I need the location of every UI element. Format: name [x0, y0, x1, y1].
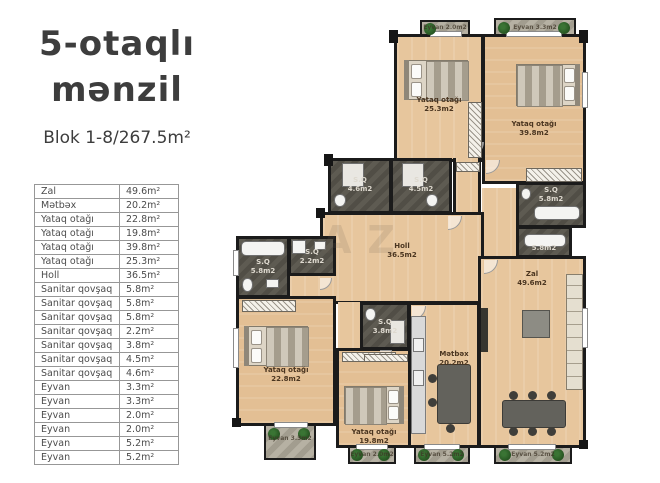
- sink: [266, 279, 279, 288]
- bed-blanket: [517, 65, 563, 107]
- room-area-cell: 4.5m²: [120, 353, 179, 367]
- room-name-cell: Yataq otağı: [35, 255, 120, 269]
- table-row: Sanitar qovşaq3.8m²: [35, 339, 179, 353]
- table-row: Holl36.5m²: [35, 269, 179, 283]
- chair: [509, 427, 518, 436]
- wall-pillar: [579, 440, 588, 449]
- room-name-cell: Sanitar qovşaq: [35, 297, 120, 311]
- table-row: Sanitar qovşaq5.8m²: [35, 297, 179, 311]
- kitchen-sink: [413, 338, 424, 352]
- table-row: Mətbəx20.2m²: [35, 199, 179, 213]
- room-hall: [320, 212, 484, 304]
- table-row: Sanitar qovşaq4.5m²: [35, 353, 179, 367]
- room-area-table: Zal49.6m² Mətbəx20.2m² Yataq otağı22.8m²…: [34, 184, 179, 465]
- sofa: [566, 274, 583, 390]
- coffee-table: [522, 310, 550, 338]
- wall-pillar: [324, 154, 333, 166]
- floor-plan: Yataq otağı25.3m2 Yataq otağı39.8m2 Holl…: [232, 8, 600, 470]
- room-name-cell: Sanitar qovşaq: [35, 311, 120, 325]
- room-name-cell: Sanitar qovşaq: [35, 367, 120, 381]
- window: [582, 72, 588, 108]
- table-row: Eyvan3.3m²: [35, 381, 179, 395]
- wall-pillar: [232, 418, 241, 427]
- room-area-cell: 36.5m²: [120, 269, 179, 283]
- chair: [428, 398, 437, 407]
- room-area-cell: 19.8m²: [120, 227, 179, 241]
- tv-stand: [481, 308, 488, 352]
- room-area-cell: 5.2m²: [120, 451, 179, 465]
- kitchen-dining-table: [437, 364, 471, 424]
- chair: [528, 427, 537, 436]
- plant: [378, 449, 390, 461]
- bath-cabinet: [342, 163, 364, 187]
- toilet: [242, 278, 253, 292]
- plant: [268, 428, 280, 440]
- room-name-cell: Eyvan: [35, 423, 120, 437]
- toilet: [334, 194, 346, 207]
- table-row: Sanitar qovşaq5.8m²: [35, 283, 179, 297]
- block-subtitle: Blok 1-8/267.5m²: [12, 128, 222, 148]
- bed-pillow: [411, 82, 422, 97]
- room-name-cell: Zal: [35, 185, 120, 199]
- bath-cabinet: [390, 320, 405, 344]
- room-name-cell: Holl: [35, 269, 120, 283]
- room-name-cell: Sanitar qovşaq: [35, 325, 120, 339]
- bed-pillow: [388, 406, 399, 420]
- room-name-cell: Yataq otağı: [35, 241, 120, 255]
- table-row: Sanitar qovşaq4.6m²: [35, 367, 179, 381]
- wall-pillar: [316, 208, 325, 218]
- wardrobe: [242, 300, 296, 312]
- room-area-cell: 49.6m²: [120, 185, 179, 199]
- room-name-cell: Yataq otağı: [35, 227, 120, 241]
- room-area-cell: 2.0m²: [120, 409, 179, 423]
- table-row: Zal49.6m²: [35, 185, 179, 199]
- room-area-cell: 3.8m²: [120, 339, 179, 353]
- table-row: Yataq otağı39.8m²: [35, 241, 179, 255]
- plant: [298, 428, 310, 440]
- bed-pillow: [564, 68, 575, 83]
- window: [508, 444, 556, 450]
- room-name-cell: Eyvan: [35, 437, 120, 451]
- title-line2: mənzil: [51, 70, 183, 110]
- room-area-cell: 22.8m²: [120, 213, 179, 227]
- room-area-cell: 4.6m²: [120, 367, 179, 381]
- passage-to-living: [482, 188, 518, 258]
- chair: [509, 391, 518, 400]
- room-name-cell: Eyvan: [35, 451, 120, 465]
- room-name-cell: Eyvan: [35, 381, 120, 395]
- wardrobe: [456, 162, 480, 172]
- bed-pillow: [388, 390, 399, 404]
- room-name-cell: Yataq otağı: [35, 213, 120, 227]
- living-dining-table: [502, 400, 566, 428]
- table-row: Eyvan3.3m²: [35, 395, 179, 409]
- window: [233, 250, 239, 276]
- bed-headboard: [399, 386, 404, 424]
- toilet: [426, 194, 438, 207]
- bathtub: [534, 206, 580, 220]
- table-row: Eyvan2.0m²: [35, 423, 179, 437]
- bathtub: [241, 241, 285, 256]
- room-name-cell: Mətbəx: [35, 199, 120, 213]
- table-row: Yataq otağı22.8m²: [35, 213, 179, 227]
- chair: [547, 391, 556, 400]
- bed-pillow: [411, 64, 422, 79]
- wardrobe: [468, 102, 482, 158]
- bathtub: [524, 234, 566, 247]
- plant: [452, 449, 464, 461]
- plant: [351, 449, 363, 461]
- chair: [428, 374, 437, 383]
- bed-blanket: [345, 387, 387, 425]
- room-name-cell: Sanitar qovşaq: [35, 339, 120, 353]
- plant: [424, 23, 436, 35]
- table-row: Sanitar qovşaq2.2m²: [35, 325, 179, 339]
- room-name-cell: Eyvan: [35, 395, 120, 409]
- table-row: Yataq otağı19.8m²: [35, 227, 179, 241]
- room-name-cell: Sanitar qovşaq: [35, 283, 120, 297]
- room-area-cell: 2.0m²: [120, 423, 179, 437]
- bed-headboard: [575, 64, 580, 106]
- sink: [314, 241, 326, 250]
- room-area-cell: 25.3m²: [120, 255, 179, 269]
- plant: [499, 449, 511, 461]
- table-row: Eyvan5.2m²: [35, 451, 179, 465]
- room-area-cell: 20.2m²: [120, 199, 179, 213]
- bed-pillow: [251, 330, 262, 345]
- room-name-cell: Eyvan: [35, 409, 120, 423]
- chair: [446, 424, 455, 433]
- title-line1: 5-otaqlı: [39, 24, 195, 64]
- toilet: [521, 188, 531, 200]
- window: [582, 308, 588, 348]
- table-row: Eyvan5.2m²: [35, 437, 179, 451]
- plant: [418, 449, 430, 461]
- toilet: [365, 308, 376, 321]
- wall-pillar: [389, 30, 398, 43]
- page-title: 5-otaqlı mənzil: [12, 22, 222, 114]
- wardrobe: [364, 354, 408, 362]
- bed-headboard: [244, 326, 249, 366]
- room-area-cell: 3.3m²: [120, 395, 179, 409]
- bath-cabinet: [402, 163, 424, 187]
- washing-machine: [292, 240, 306, 254]
- bed-blanket: [426, 61, 469, 101]
- bed-pillow: [251, 348, 262, 363]
- room-area-cell: 5.8m²: [120, 311, 179, 325]
- table-row: Yataq otağı25.3m²: [35, 255, 179, 269]
- bed-blanket: [266, 327, 309, 367]
- bed-headboard: [404, 60, 409, 100]
- window: [506, 31, 562, 37]
- chair: [528, 391, 537, 400]
- table-row: Sanitar qovşaq5.8m²: [35, 311, 179, 325]
- plant: [558, 22, 570, 34]
- room-area-cell: 5.8m²: [120, 297, 179, 311]
- chair: [547, 427, 556, 436]
- room-area-cell: 2.2m²: [120, 325, 179, 339]
- plant: [498, 22, 510, 34]
- kitchen-stove: [413, 370, 424, 386]
- room-name-cell: Sanitar qovşaq: [35, 353, 120, 367]
- room-area-cell: 5.2m²: [120, 437, 179, 451]
- room-area-cell: 3.3m²: [120, 381, 179, 395]
- wall-pillar: [579, 30, 588, 43]
- hall-branch: [338, 302, 360, 352]
- bed-pillow: [564, 86, 575, 101]
- window: [233, 328, 239, 368]
- room-area-cell: 5.8m²: [120, 283, 179, 297]
- plant: [552, 449, 564, 461]
- room-area-cell: 39.8m²: [120, 241, 179, 255]
- wardrobe: [526, 168, 582, 182]
- table-row: Eyvan2.0m²: [35, 409, 179, 423]
